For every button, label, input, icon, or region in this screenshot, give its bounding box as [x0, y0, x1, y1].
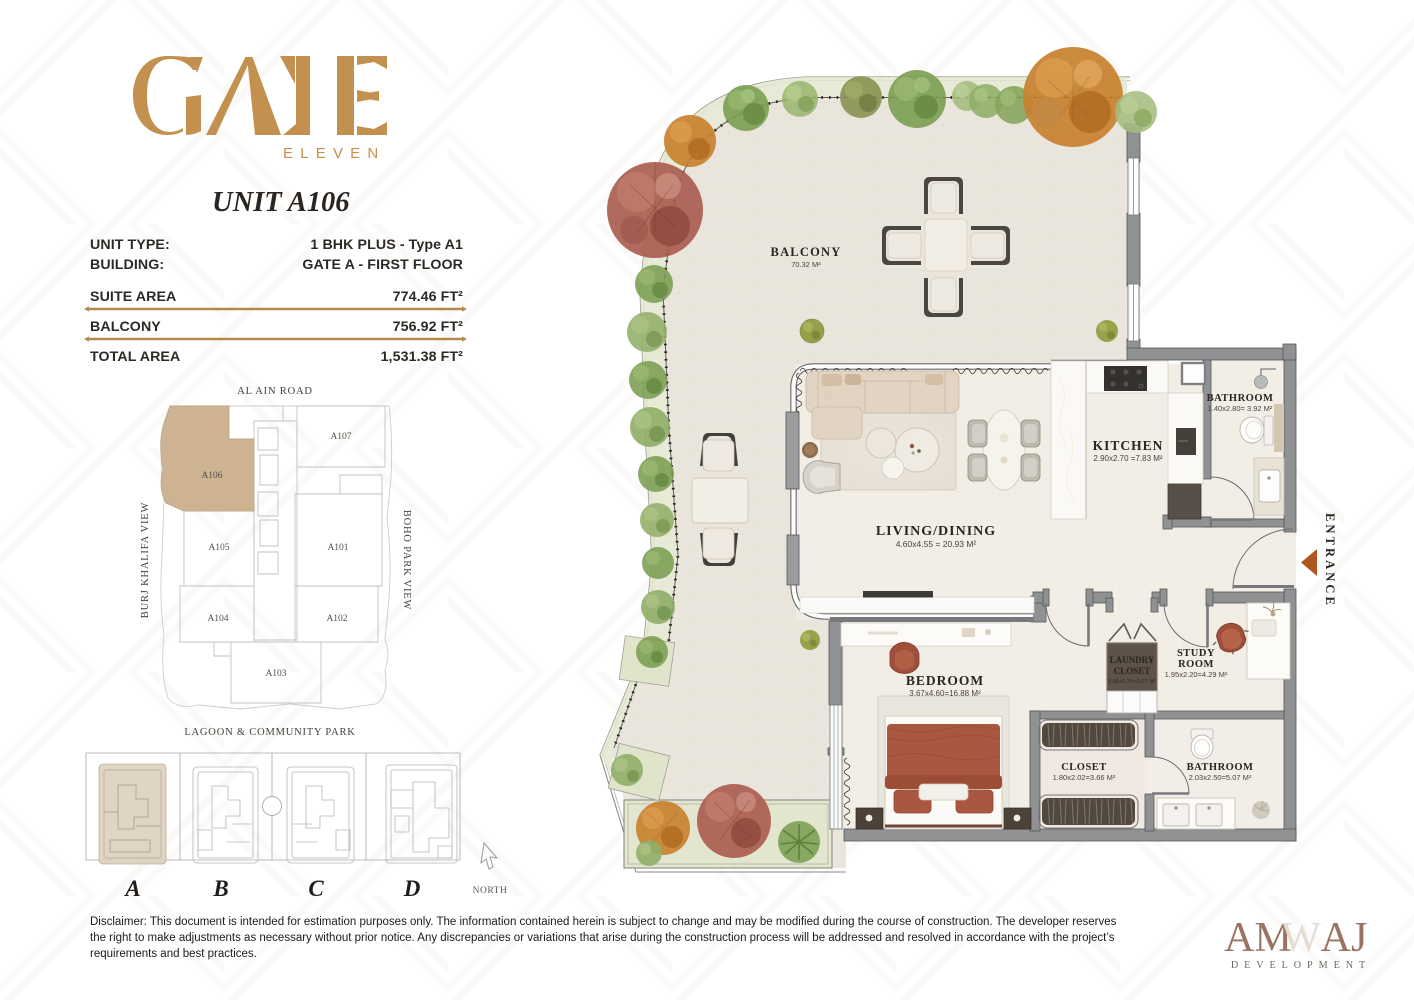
svg-text:requirements and best practice: requirements and best practices.: [90, 948, 257, 960]
svg-text:A: A: [123, 876, 140, 901]
svg-text:GATE A - FIRST FLOOR: GATE A - FIRST FLOOR: [302, 257, 463, 273]
svg-text:BALCONY: BALCONY: [90, 319, 161, 335]
svg-text:CLOSET: CLOSET: [1061, 762, 1107, 773]
svg-text:AL AIN ROAD: AL AIN ROAD: [237, 386, 313, 397]
svg-text:756.92 FT²: 756.92 FT²: [393, 319, 464, 335]
svg-text:BUILDING:: BUILDING:: [90, 257, 164, 273]
svg-text:BATHROOM: BATHROOM: [1207, 393, 1274, 404]
svg-text:STUDY: STUDY: [1177, 648, 1215, 659]
svg-text:LIVING/DINING: LIVING/DINING: [876, 524, 996, 539]
svg-text:TOTAL AREA: TOTAL AREA: [90, 349, 180, 365]
svg-text:A101: A101: [327, 543, 348, 553]
svg-text:DEVELOPMENT: DEVELOPMENT: [1231, 960, 1371, 971]
svg-text:1.95x2.20=4.29 M²: 1.95x2.20=4.29 M²: [1165, 670, 1228, 679]
svg-text:B: B: [212, 876, 228, 901]
svg-text:1.40x2.80= 3.92 M²: 1.40x2.80= 3.92 M²: [1208, 404, 1273, 413]
svg-text:the right to make adjustments: the right to make adjustments as necessa…: [90, 932, 1115, 944]
svg-text:3.67x4.60=16.88 M²: 3.67x4.60=16.88 M²: [909, 689, 981, 698]
svg-text:D: D: [403, 876, 421, 901]
svg-text:774.46 FT²: 774.46 FT²: [393, 289, 464, 305]
svg-text:ROOM: ROOM: [1178, 659, 1214, 670]
svg-text:2.03x2.50=5.07 M²: 2.03x2.50=5.07 M²: [1189, 773, 1252, 782]
svg-text:A105: A105: [208, 543, 229, 553]
svg-text:1.80x2.02=3.66 M²: 1.80x2.02=3.66 M²: [1053, 773, 1116, 782]
svg-text:A102: A102: [326, 614, 347, 624]
svg-text:UNIT TYPE:: UNIT TYPE:: [90, 237, 170, 253]
svg-text:NORTH: NORTH: [473, 886, 508, 896]
svg-text:BATHROOM: BATHROOM: [1187, 762, 1254, 773]
svg-text:70.32 M²: 70.32 M²: [791, 260, 821, 269]
svg-text:4.60x4.55 = 20.93 M²: 4.60x4.55 = 20.93 M²: [896, 539, 977, 549]
svg-text:BEDROOM: BEDROOM: [906, 673, 984, 688]
svg-text:W: W: [1281, 915, 1321, 961]
svg-text:A106: A106: [201, 471, 222, 481]
svg-text:KITCHEN: KITCHEN: [1093, 438, 1164, 453]
svg-text:BALCONY: BALCONY: [771, 245, 842, 259]
svg-text:A107: A107: [330, 432, 351, 442]
svg-text:BURJ KHALIFA VIEW: BURJ KHALIFA VIEW: [140, 502, 151, 618]
svg-text:UNIT A106: UNIT A106: [212, 187, 350, 218]
svg-text:CLOSET: CLOSET: [1114, 666, 1151, 676]
svg-text:BOHO PARK VIEW: BOHO PARK VIEW: [401, 510, 412, 610]
svg-text:A103: A103: [265, 669, 286, 679]
svg-text:ELEVEN: ELEVEN: [283, 145, 385, 162]
svg-text:1 BHK PLUS - Type A1: 1 BHK PLUS - Type A1: [310, 237, 463, 253]
svg-text:A104: A104: [207, 614, 228, 624]
svg-text:0.95x0.75=0.67 M²: 0.95x0.75=0.67 M²: [1108, 679, 1157, 685]
svg-text:ENTRANCE: ENTRANCE: [1323, 513, 1337, 608]
svg-text:1,531.38 FT²: 1,531.38 FT²: [381, 349, 464, 365]
svg-text:C: C: [308, 876, 324, 901]
svg-text:AJ: AJ: [1321, 915, 1368, 961]
svg-text:LAUNDRY: LAUNDRY: [1110, 655, 1155, 665]
svg-text:SUITE AREA: SUITE AREA: [90, 289, 176, 305]
svg-text:2.90x2.70 =7.83 M²: 2.90x2.70 =7.83 M²: [1093, 454, 1162, 463]
svg-text:LAGOON & COMMUNITY PARK: LAGOON & COMMUNITY PARK: [184, 727, 355, 738]
svg-text:Disclaimer: This document is i: Disclaimer: This document is intended fo…: [90, 916, 1117, 928]
